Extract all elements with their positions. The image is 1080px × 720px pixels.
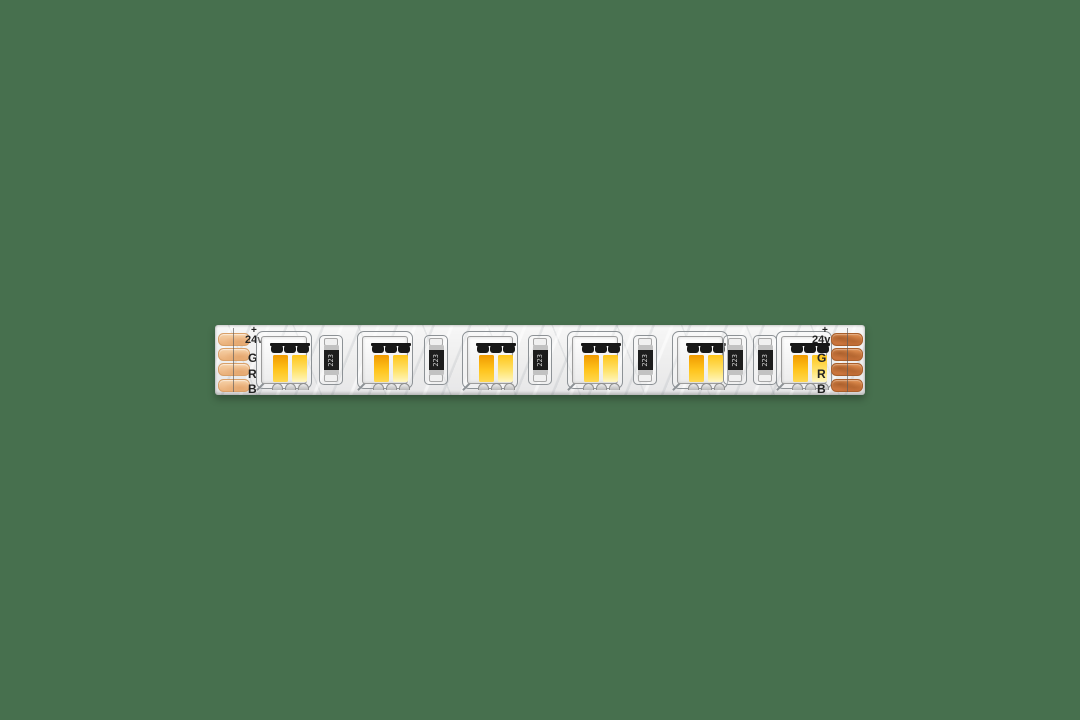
led-bottom-contact (792, 383, 803, 390)
led-bottom-contact (596, 383, 607, 390)
smd-resistor-2: 223 (424, 335, 448, 385)
led-bottom-contact (386, 383, 397, 390)
cool-white-die (393, 355, 408, 382)
smd-resistor-1: 223 (319, 335, 343, 385)
resistor-pad (638, 374, 652, 382)
cut-line-right (847, 328, 848, 392)
warm-white-die (793, 355, 808, 382)
smd-led-4 (567, 331, 623, 389)
cool-white-die (498, 355, 513, 382)
led-bottom-contact (272, 383, 283, 390)
led-package (467, 336, 513, 384)
warm-white-die (273, 355, 288, 382)
smd-resistor-5: 223 (723, 335, 747, 385)
label-right-b: B (817, 383, 826, 395)
resistor-pad (429, 374, 443, 382)
resistor-body: 223 (533, 345, 548, 375)
smd-led-2 (357, 331, 413, 389)
resistor-marking: 223 (642, 354, 649, 367)
resistor-body: 223 (324, 345, 339, 375)
led-contact-bump (503, 343, 515, 353)
led-package (677, 336, 723, 384)
led-bottom-contact (583, 383, 594, 390)
led-contact-bump (398, 343, 410, 353)
smd-resistor-6: 223 (753, 335, 777, 385)
led-contact-bump (791, 343, 803, 353)
led-contact-bump (372, 343, 384, 353)
led-contact-bump (687, 343, 699, 353)
resistor-body: 223 (728, 345, 743, 375)
warm-white-die (584, 355, 599, 382)
led-contact-bump (608, 343, 620, 353)
label-right-voltage: 24v (812, 335, 830, 346)
led-contact-bump (284, 343, 296, 353)
label-right-r: R (817, 368, 826, 380)
led-package (362, 336, 408, 384)
led-bottom-contact (701, 383, 712, 390)
solder-pad-left-g (218, 348, 250, 361)
led-bottom-contact (285, 383, 296, 390)
resistor-marking: 223 (328, 354, 335, 367)
resistor-marking: 223 (433, 354, 440, 367)
smd-led-5 (672, 331, 728, 389)
led-bottom-contact (504, 383, 515, 390)
led-bottom-contact (373, 383, 384, 390)
led-contact-bump (477, 343, 489, 353)
smd-led-1 (256, 331, 312, 389)
led-bottom-contact (609, 383, 620, 390)
led-bottom-contact (805, 383, 816, 390)
smd-led-3 (462, 331, 518, 389)
warm-white-die (689, 355, 704, 382)
led-contact-bump (595, 343, 607, 353)
led-contact-bump (582, 343, 594, 353)
resistor-pad (533, 374, 547, 382)
led-bottom-contact (491, 383, 502, 390)
led-package (572, 336, 618, 384)
solder-pad-left-b (218, 379, 250, 392)
smd-resistor-3: 223 (528, 335, 552, 385)
cool-white-die (292, 355, 307, 382)
resistor-pad (758, 374, 772, 382)
led-contact-bump (297, 343, 309, 353)
led-strip: + 24v G R B 223223223223223223 + 24v G R… (215, 325, 865, 395)
cool-white-die (708, 355, 723, 382)
led-bottom-contact (298, 383, 309, 390)
resistor-marking: 223 (537, 354, 544, 367)
resistor-body: 223 (758, 345, 773, 375)
led-bottom-contact (478, 383, 489, 390)
resistor-body: 223 (638, 345, 653, 375)
led-contact-bump (271, 343, 283, 353)
led-bottom-contact (688, 383, 699, 390)
warm-white-die (479, 355, 494, 382)
led-contact-bump (490, 343, 502, 353)
cut-line-left (233, 328, 234, 392)
resistor-pad (728, 374, 742, 382)
solder-pad-left-r (218, 363, 250, 376)
cool-white-die (603, 355, 618, 382)
led-package (261, 336, 307, 384)
resistor-body: 223 (429, 345, 444, 375)
led-contact-bump (700, 343, 712, 353)
led-contact-bump (385, 343, 397, 353)
label-right-g: G (817, 352, 826, 364)
photo-background: + 24v G R B 223223223223223223 + 24v G R… (0, 0, 1080, 720)
warm-white-die (374, 355, 389, 382)
led-bottom-contact (399, 383, 410, 390)
smd-resistor-4: 223 (633, 335, 657, 385)
resistor-marking: 223 (732, 354, 739, 367)
resistor-pad (324, 374, 338, 382)
resistor-marking: 223 (762, 354, 769, 367)
